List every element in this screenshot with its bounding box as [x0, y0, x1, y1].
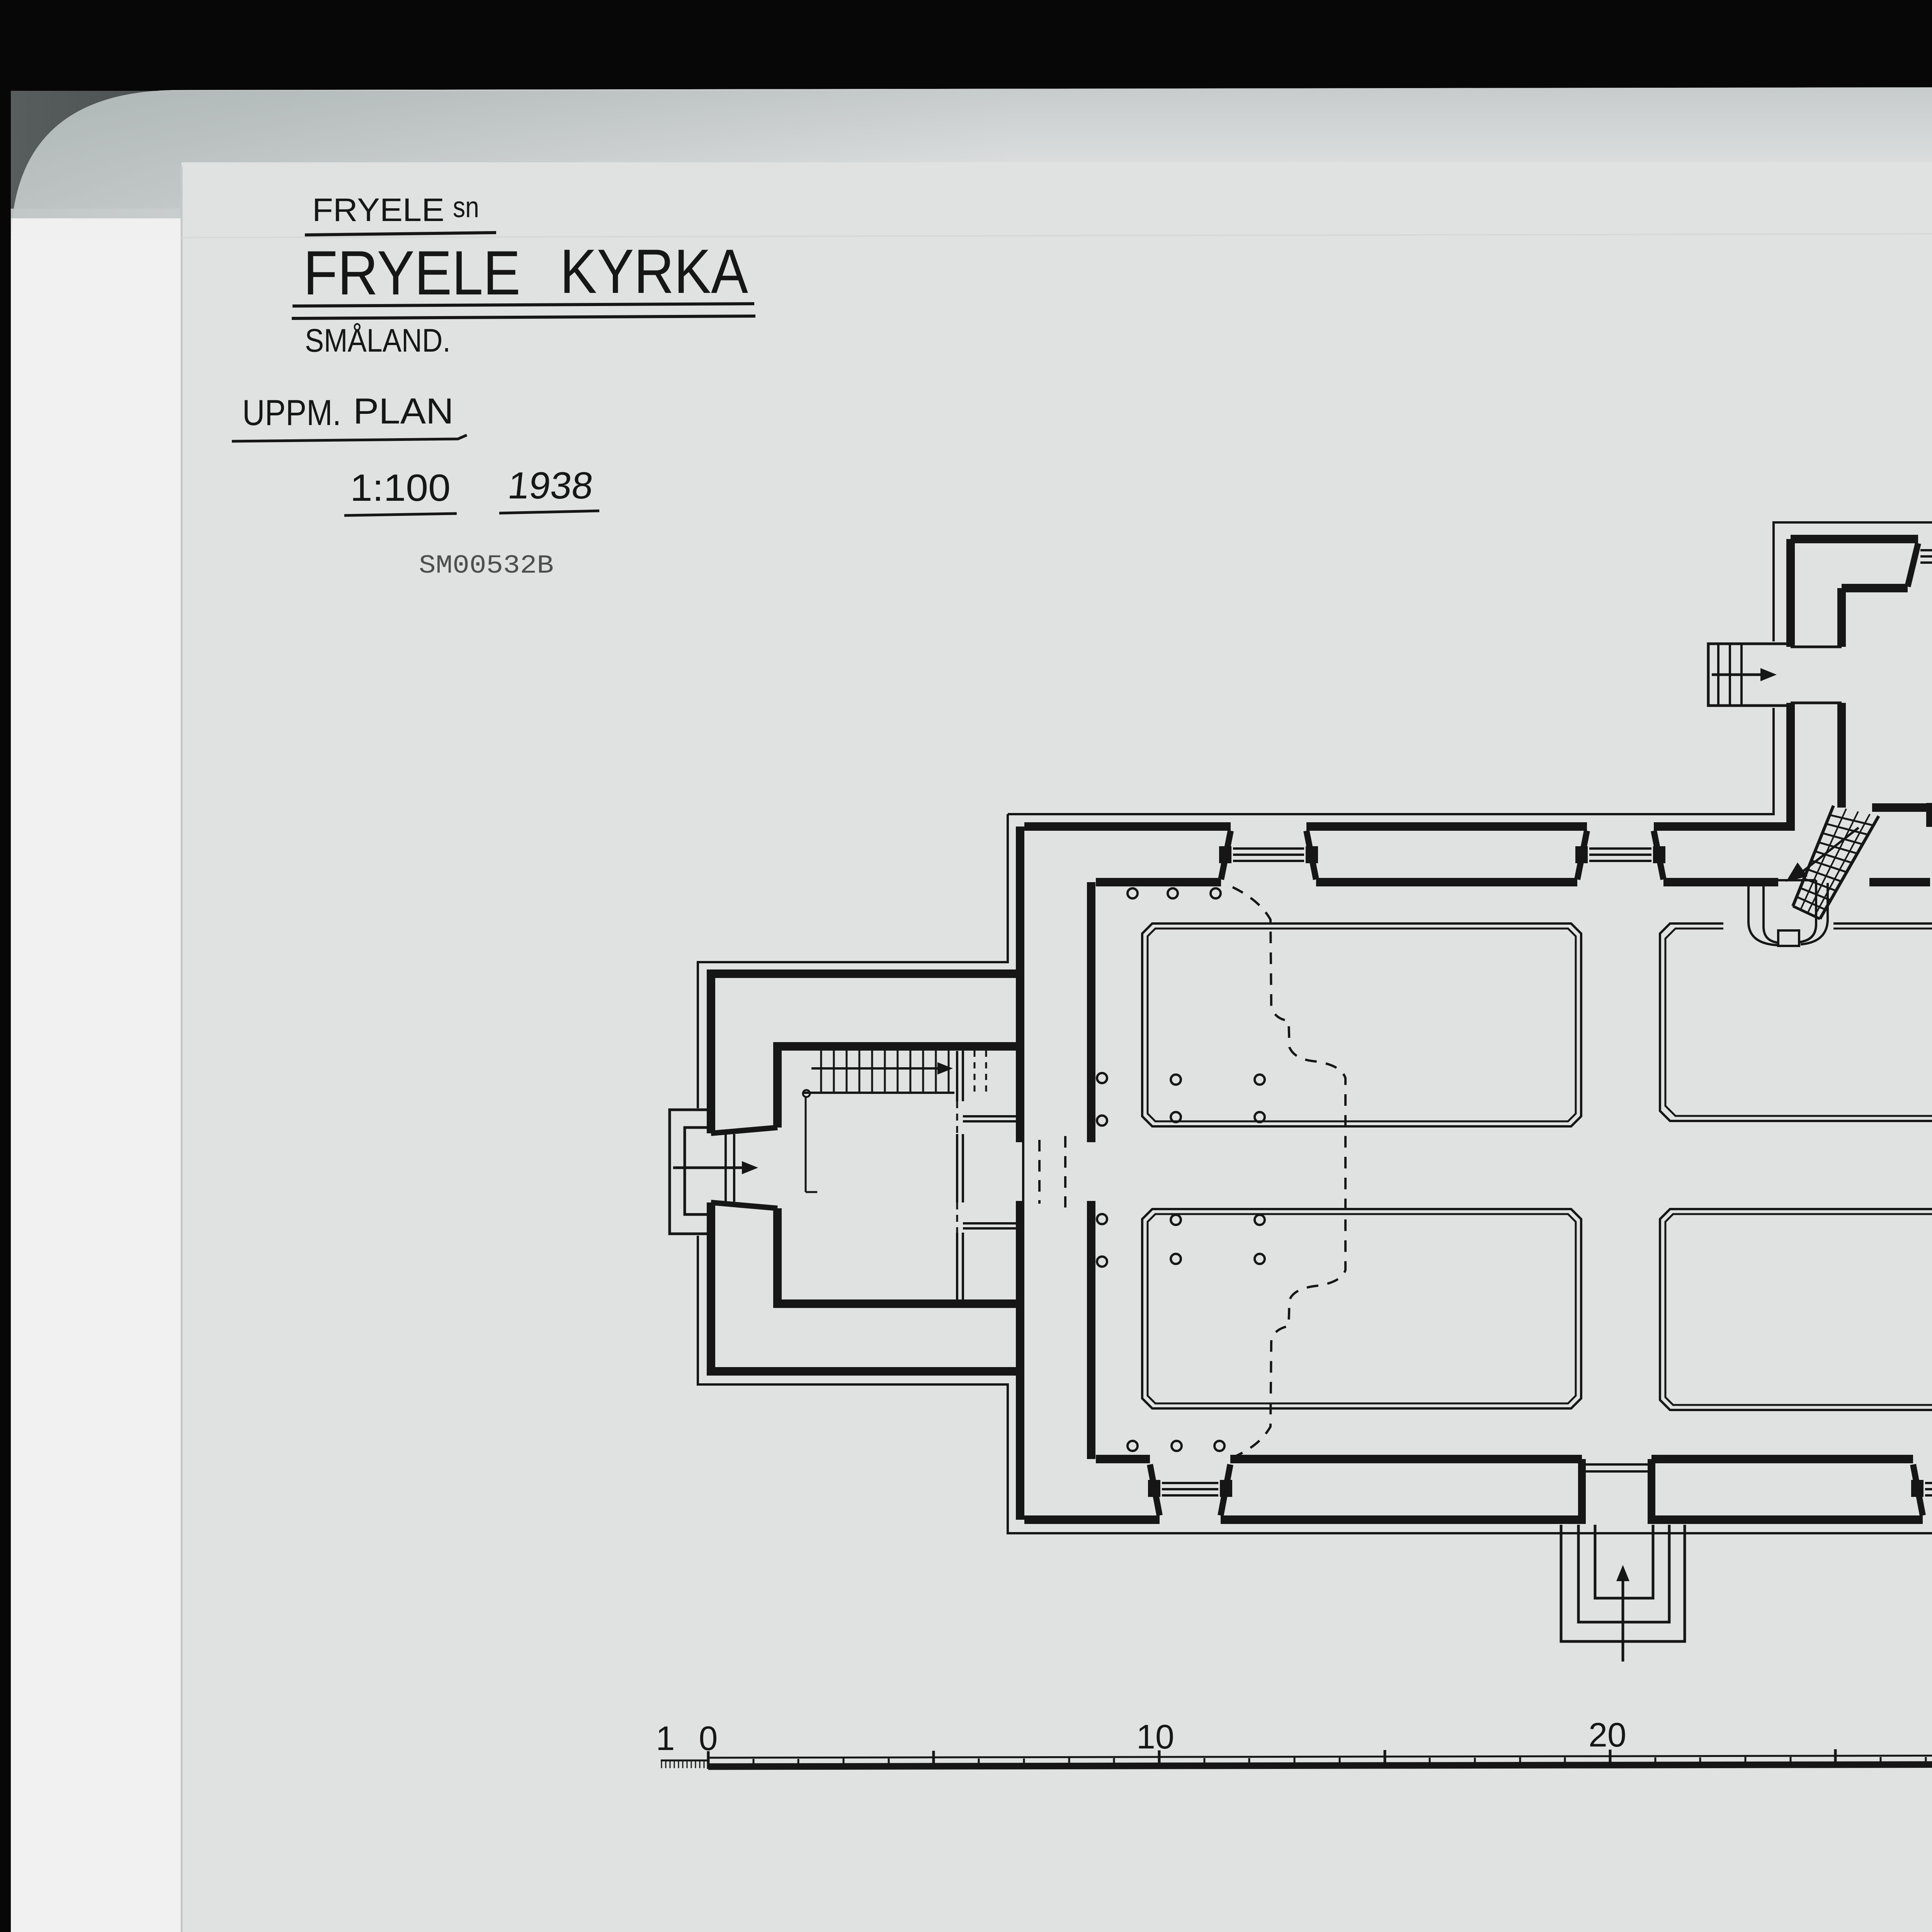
svg-text:0: 0 — [699, 1719, 718, 1757]
svg-text:SM00532B: SM00532B — [419, 551, 554, 581]
svg-text:sn: sn — [453, 191, 479, 224]
svg-text:SMÅLAND.: SMÅLAND. — [305, 322, 451, 359]
svg-text:UPPM.: UPPM. — [242, 392, 341, 433]
svg-text:1: 1 — [656, 1719, 675, 1757]
svg-text:10: 10 — [1136, 1718, 1174, 1756]
svg-text:FRYELE: FRYELE — [303, 238, 520, 308]
svg-text:20: 20 — [1588, 1716, 1626, 1754]
svg-text:PLAN: PLAN — [353, 391, 454, 431]
svg-text:KYRKA: KYRKA — [560, 236, 748, 306]
svg-text:1:100: 1:100 — [350, 466, 451, 509]
svg-text:1938: 1938 — [506, 464, 595, 507]
svg-text:FRYELE: FRYELE — [312, 192, 444, 228]
